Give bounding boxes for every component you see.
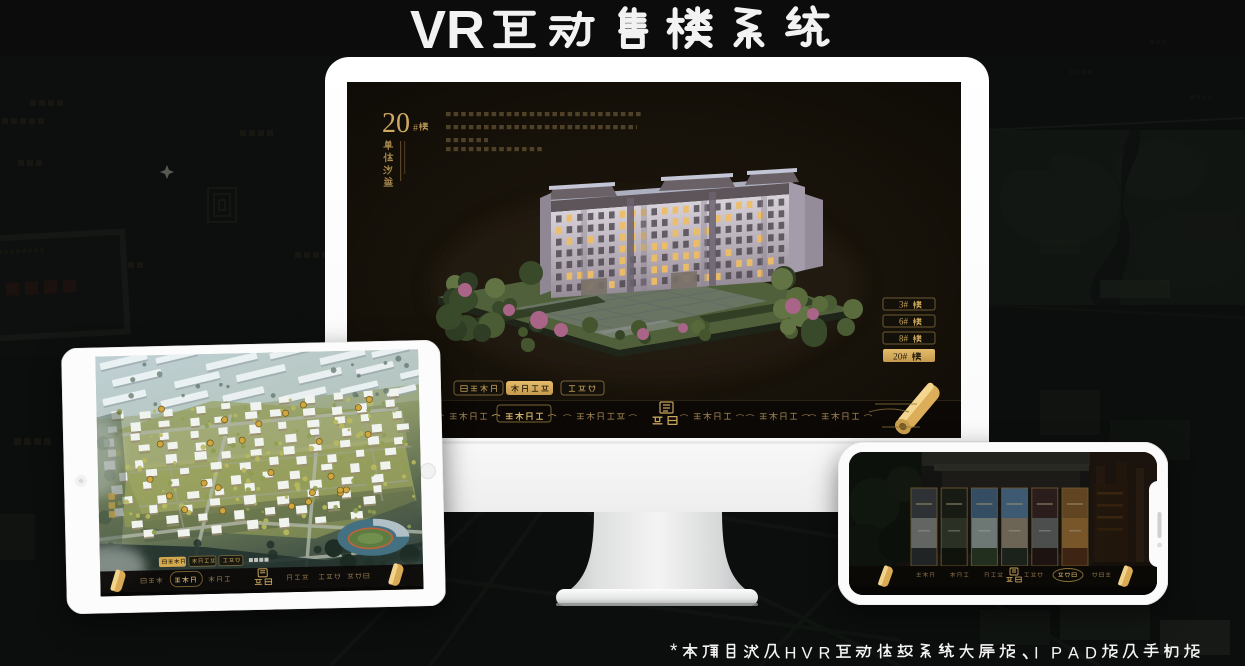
svg-text:I: I — [1034, 645, 1039, 663]
svg-text:#: # — [413, 123, 418, 134]
svg-text:8#: 8# — [899, 334, 909, 344]
svg-text:R: R — [819, 645, 831, 663]
svg-text:P: P — [1051, 645, 1062, 663]
svg-text:3#: 3# — [899, 300, 909, 310]
svg-text:D: D — [1085, 645, 1097, 663]
svg-text:*: * — [670, 641, 678, 662]
svg-text:6#: 6# — [899, 317, 909, 327]
svg-text:A: A — [1068, 645, 1079, 663]
svg-text:20#: 20# — [893, 353, 908, 363]
svg-text:V: V — [802, 645, 813, 663]
svg-text:20: 20 — [382, 108, 410, 139]
svg-text:H: H — [785, 645, 797, 663]
